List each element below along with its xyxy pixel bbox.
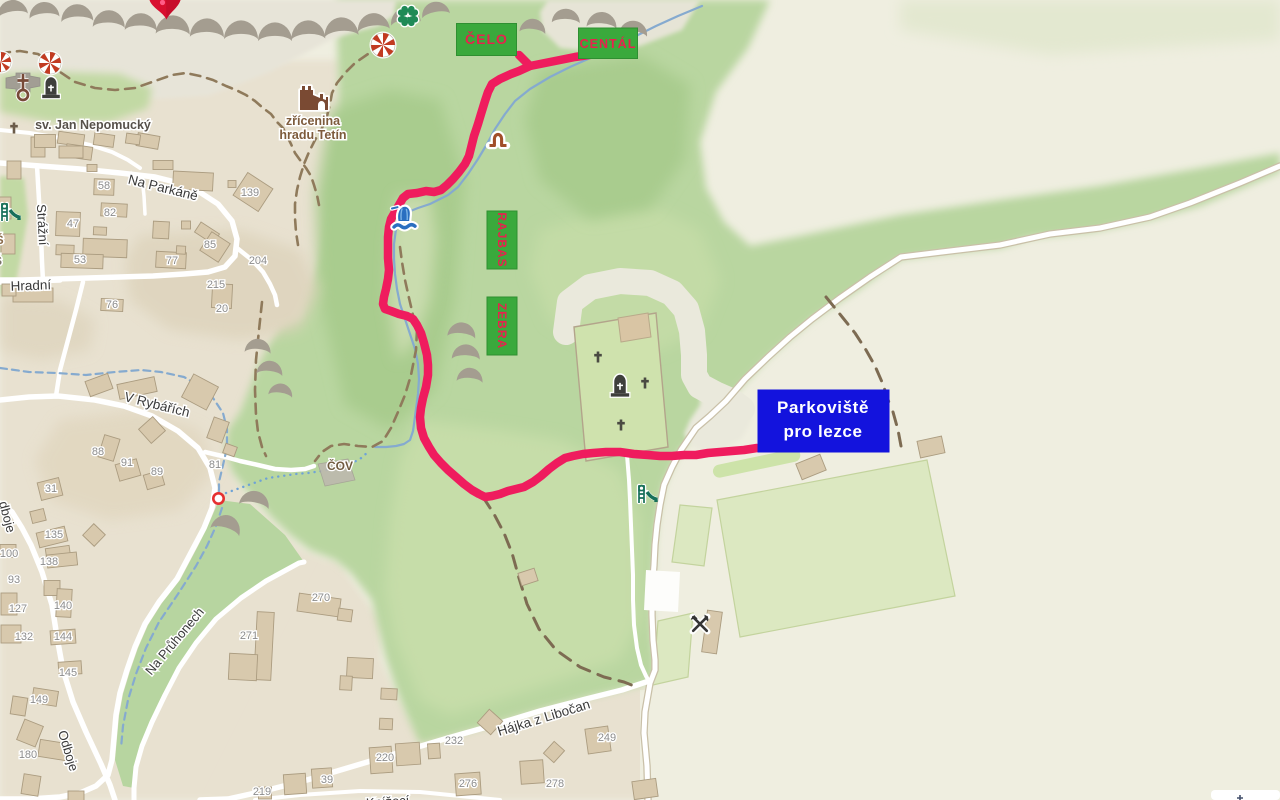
svg-text:93: 93	[8, 574, 20, 586]
svg-text:91: 91	[121, 457, 133, 469]
svg-text:204: 204	[249, 255, 267, 267]
svg-text:39: 39	[321, 774, 333, 786]
svg-text:271: 271	[240, 630, 258, 642]
svg-text:ČELO: ČELO	[465, 30, 508, 47]
svg-text:127: 127	[9, 603, 27, 615]
svg-text:zřícenina: zřícenina	[286, 114, 341, 128]
svg-text:58: 58	[98, 180, 110, 192]
svg-text:149: 149	[30, 694, 48, 706]
svg-text:31: 31	[45, 483, 57, 495]
svg-text:232: 232	[445, 735, 463, 747]
svg-text:100: 100	[0, 548, 18, 560]
svg-text:CENTÁL: CENTÁL	[580, 36, 637, 51]
svg-text:145: 145	[59, 667, 77, 679]
svg-text:ČOV: ČOV	[327, 458, 353, 473]
svg-text:sv. Jan Nepomucký: sv. Jan Nepomucký	[35, 118, 151, 132]
svg-text:180: 180	[19, 749, 37, 761]
svg-text:47: 47	[67, 218, 79, 230]
svg-text:85: 85	[204, 239, 216, 251]
svg-text:219: 219	[253, 786, 271, 798]
svg-text:88: 88	[92, 446, 104, 458]
svg-text:53: 53	[74, 254, 86, 266]
svg-text:Parkoviště: Parkoviště	[777, 398, 869, 417]
svg-text:ZEBRA: ZEBRA	[495, 303, 509, 349]
svg-text:Hradní: Hradní	[10, 277, 51, 293]
svg-text:278: 278	[546, 778, 564, 790]
svg-text:RAJBAS: RAJBAS	[495, 212, 509, 267]
svg-text:276: 276	[459, 778, 477, 790]
svg-text:132: 132	[15, 631, 33, 643]
svg-text:81: 81	[209, 459, 221, 471]
svg-text:138: 138	[40, 556, 58, 568]
svg-text:270: 270	[312, 592, 330, 604]
svg-text:215: 215	[207, 279, 225, 291]
svg-text:135: 135	[45, 529, 63, 541]
svg-text:139: 139	[241, 187, 259, 199]
svg-text:hradu Tetín: hradu Tetín	[279, 128, 346, 142]
svg-text:76: 76	[106, 299, 118, 311]
svg-text:Strážní: Strážní	[34, 204, 51, 246]
svg-text:82: 82	[104, 207, 116, 219]
svg-text:140: 140	[54, 600, 72, 612]
svg-text:89: 89	[151, 466, 163, 478]
svg-text:20: 20	[216, 303, 228, 315]
svg-text:Š: Š	[0, 253, 2, 268]
svg-text:249: 249	[598, 732, 616, 744]
svg-text:77: 77	[166, 255, 178, 267]
svg-text:144: 144	[54, 631, 72, 643]
svg-text:pro lezce: pro lezce	[783, 422, 862, 441]
svg-text:iŠ: iŠ	[0, 232, 4, 247]
svg-text:220: 220	[376, 752, 394, 764]
